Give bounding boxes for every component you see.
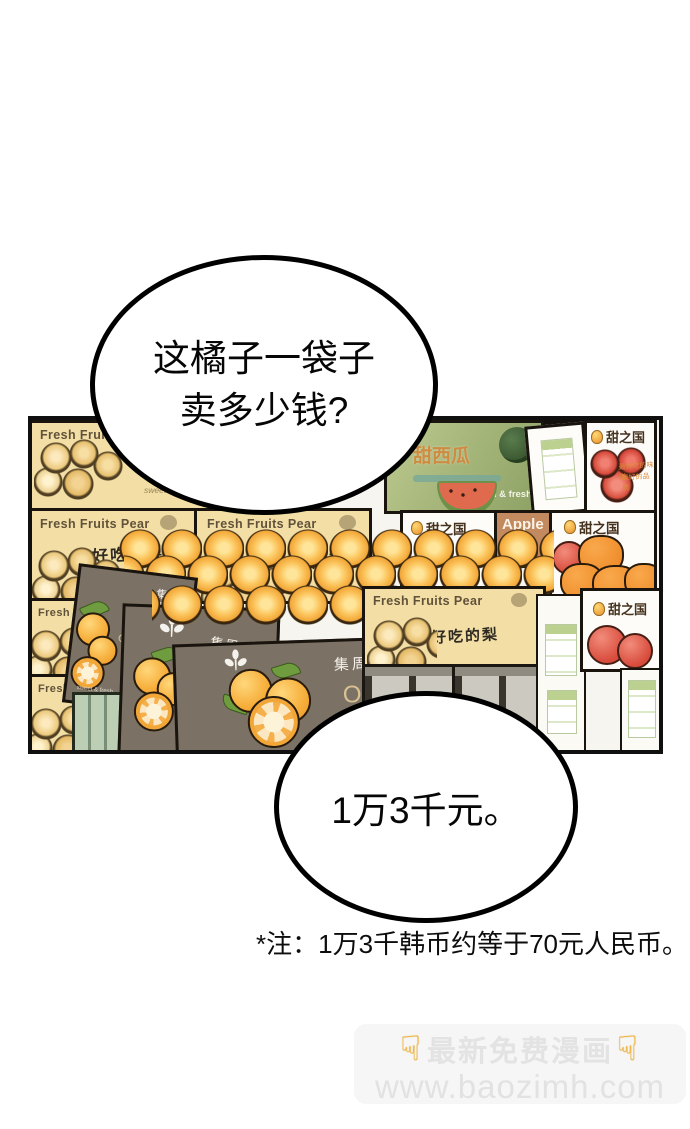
pears-illustration [367,615,437,665]
pear-box-slogan: 好吃的梨 [430,623,499,648]
white-label-box [620,668,663,754]
translator-note: *注：1万3千韩币约等于70元人民币。 [256,924,688,961]
sweet-kingdom-title-text: 甜之国 [579,517,620,537]
sweet-kingdom-small-box: 甜之国 [580,588,663,672]
sweet-kingdom-desc2: 最好的品质 [621,471,654,493]
sweet-kingdom-title-text: 甜之国 [606,427,645,446]
watermark-title: 最新免费漫画 [427,1028,613,1070]
pear-box-logo-dot [511,593,527,607]
site-watermark: ☟ 最新免费漫画 ☟ www.baozimh.com [354,1024,686,1104]
gold-fruit-icon [564,520,576,534]
speech-bubble-question: 这橘子一袋子 卖多少钱? [90,255,438,515]
shipping-label [547,690,577,734]
pointing-down-icon: ☟ [400,1029,423,1069]
shipping-label [540,438,577,501]
tilted-white-box [524,422,592,517]
speech-bubble-answer: 1万3千元。 [274,691,578,923]
white-label-box [536,594,586,754]
red-apple-icon [617,633,653,669]
sweet-kingdom-title: 甜之国 [591,427,645,446]
pointing-down-icon: ☟ [617,1029,640,1069]
watermark-title-row: ☟ 最新免费漫画 ☟ [354,1028,686,1070]
answer-text: 1万3千元。 [331,780,520,834]
gold-fruit-icon [593,602,605,616]
orange-half-icon [133,691,174,732]
watermelon-box-title: 甜西瓜 [413,441,470,468]
sweet-kingdom-title: 甜之国 [593,599,647,618]
sweet-kingdom-apple-box: 甜之国 最好吃的味道 最好的品质 [584,420,657,514]
sweet-kingdom-title: 甜之国 [564,517,620,537]
pear-box-lower-right: Fresh Fruits Pear 好吃的梨 [362,586,546,670]
sweet-kingdom-title-text: 甜之国 [608,599,647,618]
shipping-label [628,680,656,738]
flower-logo-icon [223,649,248,672]
pear-box-title: Fresh Fruits Pear [373,594,483,608]
watermark-url: www.baozimh.com [354,1068,686,1104]
shipping-label [545,624,577,676]
orange-half-icon [247,695,301,749]
question-line2: 卖多少钱? [180,385,349,437]
question-line1: 这橘子一袋子 [153,333,375,385]
gold-fruit-icon [591,430,603,444]
